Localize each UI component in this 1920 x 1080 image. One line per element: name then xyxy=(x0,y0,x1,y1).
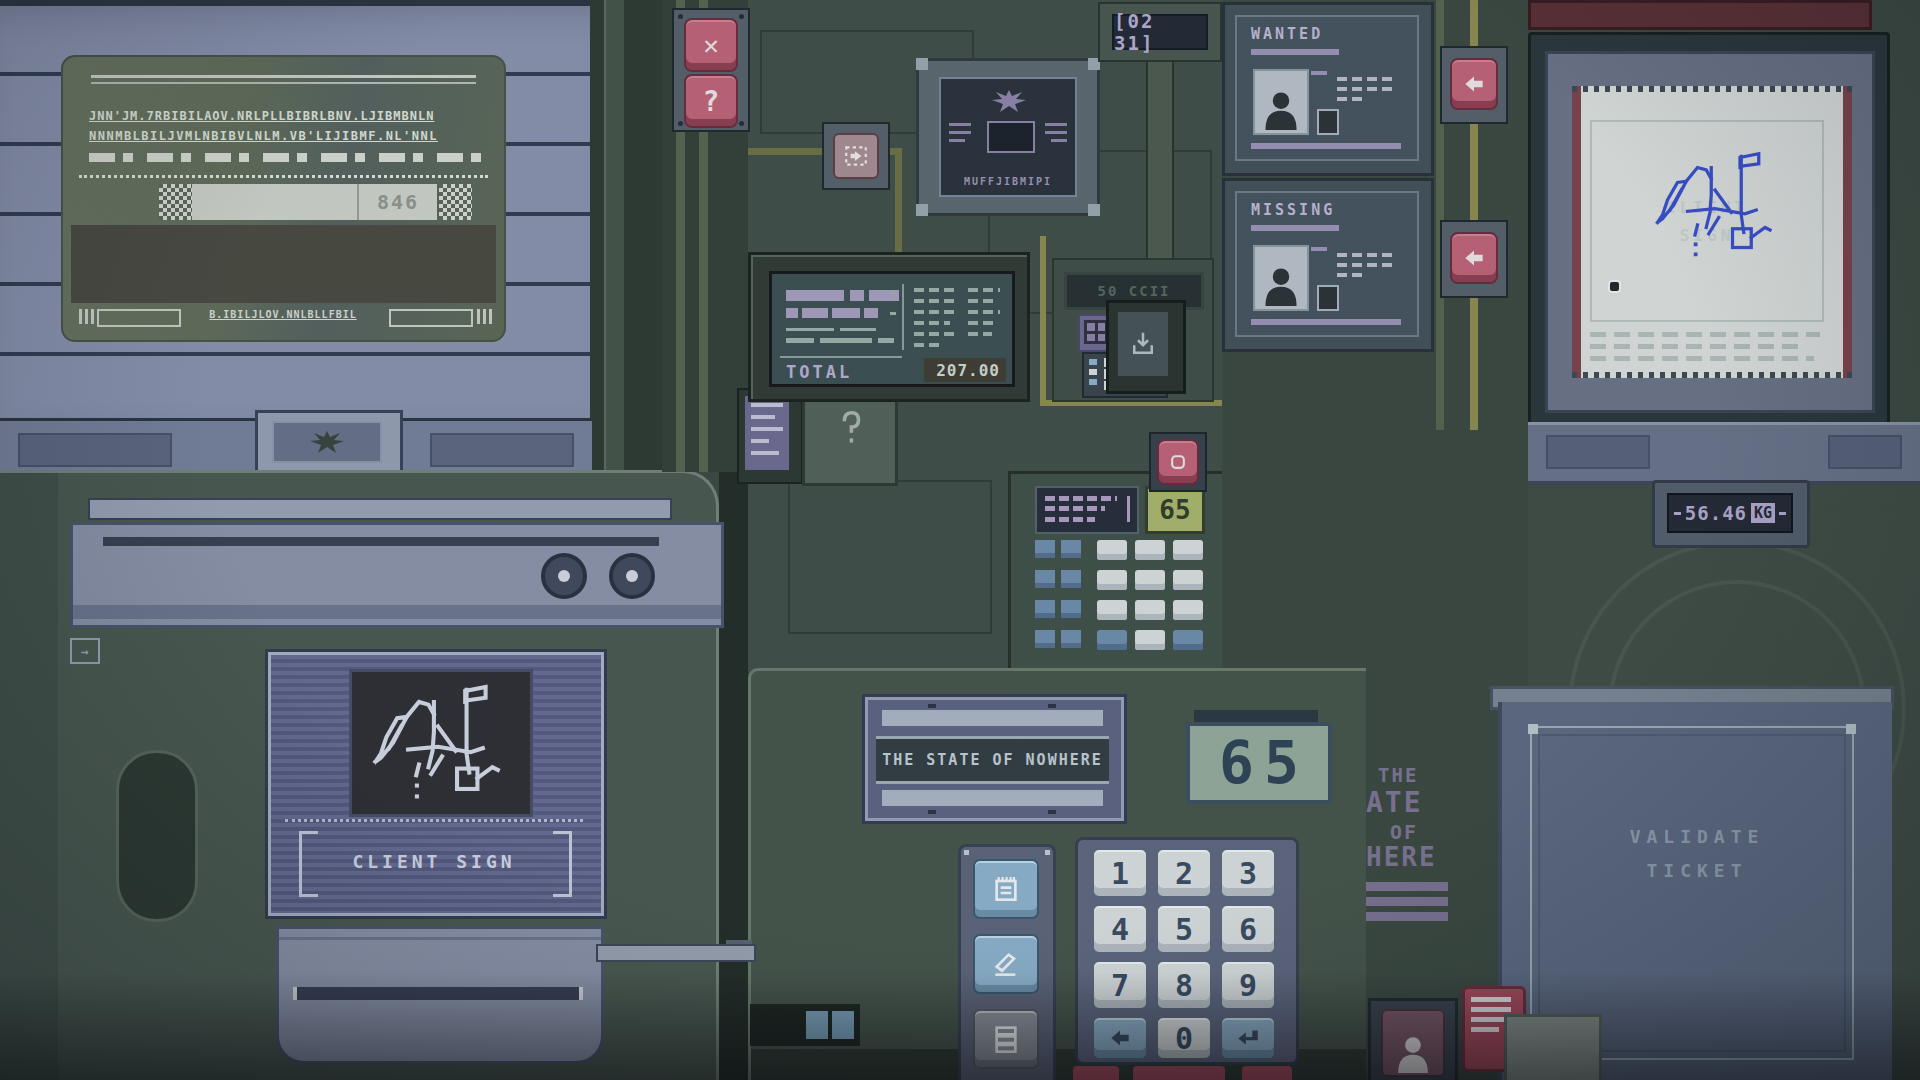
total-label: TOTAL xyxy=(786,362,852,382)
paper-document[interactable]: CLIENT SIGN xyxy=(1572,86,1852,378)
conveyor-rod xyxy=(596,944,756,962)
card-magnetic-stripe xyxy=(71,225,496,303)
monitor-shelf xyxy=(1528,422,1920,485)
clock-mount: [02 31] xyxy=(1098,2,1222,62)
pen-icon xyxy=(990,948,1022,980)
register-mount: TOTAL 207.00 xyxy=(748,252,1030,402)
paper-signature-box: CLIENT SIGN xyxy=(1590,120,1824,322)
id-card[interactable]: JNN'JM.7RBIBILAOV.NRLPLLBIBRLBNV.LJIBMBN… xyxy=(61,55,506,342)
wall-sign-line-4: HERE xyxy=(1366,842,1437,872)
arrow-left-icon xyxy=(1461,71,1487,97)
stack-icon xyxy=(990,1023,1022,1055)
counter-display xyxy=(1035,486,1139,534)
printer-slot xyxy=(103,537,659,546)
card-top-rule xyxy=(91,75,476,78)
emblem-caption: MUFFJIBMIPI xyxy=(941,176,1075,187)
documents-button[interactable] xyxy=(973,1009,1039,1069)
inspect-arrow-icon xyxy=(843,143,869,169)
register-screen: TOTAL 207.00 xyxy=(769,271,1015,387)
card-code: 846 xyxy=(377,190,419,214)
validator-frame xyxy=(1530,726,1854,1060)
wanted-poster[interactable]: WANTED xyxy=(1235,15,1419,161)
tray-slot xyxy=(297,987,579,1000)
key-4[interactable]: 4 xyxy=(1092,904,1148,954)
missing-prev-button[interactable] xyxy=(1450,232,1498,284)
sill-eagle-plaque xyxy=(255,410,403,476)
validator-label-line1: VALIDATE xyxy=(1502,826,1892,847)
pipe xyxy=(895,148,902,268)
wall-sign-line-2: ATE xyxy=(1366,786,1423,819)
printer-knob-2[interactable] xyxy=(609,553,655,599)
sign-pad-separator xyxy=(285,819,583,822)
close-button[interactable]: ✕ xyxy=(684,18,738,72)
enter-icon xyxy=(1235,1025,1261,1051)
help-button[interactable]: ? xyxy=(684,74,738,128)
window-frame-right xyxy=(590,0,662,472)
output-tray[interactable] xyxy=(276,926,604,1064)
wall-sign-line-1: THE xyxy=(1378,764,1418,786)
cursor-dot xyxy=(1610,282,1619,291)
inspect-button[interactable] xyxy=(833,133,879,179)
wanted-poster-mount: WANTED xyxy=(1222,2,1434,176)
ring-icon xyxy=(1168,452,1188,472)
inspect-plate xyxy=(822,122,890,190)
fee-display: 65 xyxy=(1186,722,1332,804)
signature-scribble xyxy=(352,672,530,808)
indicator-bar xyxy=(750,1004,860,1046)
maroon-duct xyxy=(1528,0,1872,30)
suspect-silhouette-icon xyxy=(1259,83,1303,133)
clock-display: [02 31] xyxy=(1112,14,1208,50)
card-footer-text: B.IBILJLOV.NNLBLLFBIL xyxy=(185,309,381,320)
key-3[interactable]: 3 xyxy=(1220,848,1276,898)
intake-module xyxy=(1106,300,1186,394)
total-amount: 207.00 xyxy=(936,361,1000,380)
notepad-icon xyxy=(990,873,1022,905)
accessory-plate xyxy=(1149,432,1207,492)
emblem-plaque: MUFFJIBMIPI xyxy=(939,77,1077,197)
total-amount-box: 207.00 xyxy=(924,358,1006,382)
scale-display: 56.46 KG xyxy=(1667,493,1793,533)
card-mrz-line2: NNNMBLBILJVMLNBIBVLNLM.VB'LIJIBMF.NL'NNL xyxy=(89,129,481,143)
key-6[interactable]: 6 xyxy=(1220,904,1276,954)
missing-poster-mount: MISSING xyxy=(1222,178,1434,352)
download-icon xyxy=(1128,329,1158,359)
scale-value: 56.46 xyxy=(1685,502,1747,524)
wanted-title: WANTED xyxy=(1251,25,1323,43)
eagle-icon xyxy=(307,428,347,456)
key-1[interactable]: 1 xyxy=(1092,848,1148,898)
card-signature-strip xyxy=(192,184,359,220)
missing-poster[interactable]: MISSING xyxy=(1235,191,1419,337)
perforation-bottom xyxy=(1572,372,1852,378)
key-backspace[interactable] xyxy=(1092,1016,1148,1060)
printer-body xyxy=(70,522,724,628)
counter-keys[interactable] xyxy=(1035,540,1205,660)
signature-monitor: CLIENT SIGN xyxy=(1528,32,1890,428)
sign-pad-bracket-right xyxy=(553,831,572,897)
panel-corner xyxy=(1504,1014,1602,1080)
printer-knob-1[interactable] xyxy=(541,553,587,599)
wall-sign: THE ATE OF HERE xyxy=(1362,760,1492,940)
console-button-strip xyxy=(958,844,1056,1080)
wanted-prev-button[interactable] xyxy=(1450,58,1498,110)
missing-stamp-box xyxy=(1317,285,1339,311)
card-dash-row xyxy=(89,153,481,162)
numeric-keypad: 1 2 3 4 5 6 7 8 9 0 xyxy=(1075,837,1299,1065)
state-plaque: THE STATE OF NOWHERE xyxy=(865,697,1124,821)
hook-icon xyxy=(833,407,867,447)
card-dotted-separator xyxy=(79,175,488,178)
wanted-stamp-box xyxy=(1317,109,1339,135)
receipt-button[interactable] xyxy=(973,859,1039,919)
signature-scribble-ink xyxy=(1640,140,1790,265)
backspace-icon xyxy=(1107,1025,1133,1051)
card-footer-bars-left xyxy=(79,309,94,324)
card-code-box: 846 xyxy=(359,184,437,220)
wanted-prev-plate xyxy=(1440,46,1508,124)
person-icon xyxy=(1392,1029,1434,1075)
wall-sign-line-3: OF xyxy=(1390,820,1418,844)
emblem-plaque-mount: MUFFJIBMIPI xyxy=(916,58,1100,216)
key-top xyxy=(1133,1066,1225,1080)
pcb-module xyxy=(737,388,803,484)
card-footer-box-left xyxy=(97,309,181,327)
key-top xyxy=(1073,1066,1119,1080)
help-icon: ? xyxy=(703,85,720,118)
card-footer-bars-right xyxy=(477,309,492,324)
missing-silhouette-icon xyxy=(1259,259,1303,309)
eagle-icon xyxy=(989,87,1029,115)
card-checker-right xyxy=(439,184,472,220)
card-footer-box-right xyxy=(389,309,473,327)
counter-value-display: 65 xyxy=(1145,486,1205,534)
sign-pad-label: CLIENT SIGN xyxy=(325,851,543,872)
sign-pad-screen[interactable] xyxy=(349,669,533,817)
client-sign-pad[interactable]: CLIENT SIGN xyxy=(268,652,604,916)
card-mrz-line1: JNN'JM.7RBIBILAOV.NRLPLLBIBRLBNV.LJIBMBN… xyxy=(89,109,481,123)
counter-keypad-module: 65 xyxy=(1008,471,1226,692)
key-0[interactable]: 0 xyxy=(1156,1016,1212,1060)
perforation-top xyxy=(1572,86,1852,92)
key-2[interactable]: 2 xyxy=(1156,848,1212,898)
close-icon: ✕ xyxy=(703,30,719,60)
key-7[interactable]: 7 xyxy=(1092,960,1148,1010)
card-top-rule2 xyxy=(91,82,476,84)
key-5[interactable]: 5 xyxy=(1156,904,1212,954)
arrow-left-icon xyxy=(1461,245,1487,271)
monitor-bezel: CLIENT SIGN xyxy=(1545,51,1875,413)
key-9[interactable]: 9 xyxy=(1220,960,1276,1010)
missing-prev-plate xyxy=(1440,220,1508,298)
person-button[interactable] xyxy=(1381,1009,1445,1077)
sign-request-button[interactable] xyxy=(973,934,1039,994)
booth-scene: JNN'JM.7RBIBILAOV.NRLPLLBIBRLBNV.LJIBMBN… xyxy=(0,0,1920,1080)
printer-rail xyxy=(88,498,672,520)
eject-mark-icon: → xyxy=(70,638,100,664)
sign-pad-bracket-left xyxy=(299,831,318,897)
scale-mount: 56.46 KG xyxy=(1652,480,1810,548)
state-plaque-band: THE STATE OF NOWHERE xyxy=(876,736,1109,784)
key-8[interactable]: 8 xyxy=(1156,960,1212,1010)
key-top xyxy=(1242,1066,1292,1080)
accessory-button[interactable] xyxy=(1157,439,1199,485)
pipe xyxy=(1040,236,1046,406)
window-controls-plate: ✕ ? xyxy=(672,8,750,132)
missing-photo xyxy=(1253,245,1309,311)
card-checker-left xyxy=(159,184,192,220)
person-plate xyxy=(1368,998,1458,1080)
key-enter[interactable] xyxy=(1220,1016,1276,1060)
machine-handle[interactable] xyxy=(116,750,198,922)
missing-title: MISSING xyxy=(1251,201,1335,219)
wanted-photo xyxy=(1253,69,1309,135)
scale-unit: KG xyxy=(1751,503,1775,523)
validator-label-line2: TICKET xyxy=(1502,860,1892,881)
state-plaque-text: THE STATE OF NOWHERE xyxy=(882,751,1103,769)
